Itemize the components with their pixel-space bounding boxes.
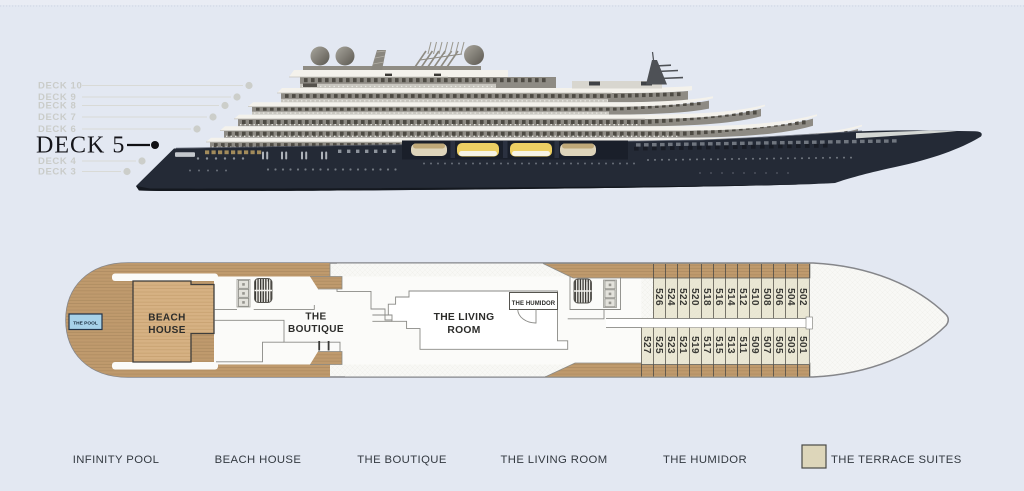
svg-text:517: 517 xyxy=(701,336,712,354)
svg-text:DECK 8: DECK 8 xyxy=(38,101,76,112)
svg-text:509: 509 xyxy=(749,336,760,354)
svg-text:525: 525 xyxy=(653,336,664,354)
svg-text:507: 507 xyxy=(761,336,772,354)
svg-text:DECK 7: DECK 7 xyxy=(38,112,76,123)
svg-text:521: 521 xyxy=(677,336,688,354)
svg-text:527: 527 xyxy=(641,336,652,354)
svg-text:505: 505 xyxy=(773,336,784,354)
svg-text:THE POOL: THE POOL xyxy=(73,321,98,327)
svg-text:INFINITY POOL: INFINITY POOL xyxy=(73,454,160,466)
svg-text:DECK 10: DECK 10 xyxy=(38,81,82,92)
svg-text:516: 516 xyxy=(713,288,724,306)
svg-text:BOUTIQUE: BOUTIQUE xyxy=(288,324,344,335)
svg-text:522: 522 xyxy=(677,288,688,306)
svg-text:510: 510 xyxy=(749,288,760,306)
svg-text:526: 526 xyxy=(653,288,664,306)
svg-text:508: 508 xyxy=(761,288,772,306)
svg-text:THE TERRACE SUITES: THE TERRACE SUITES xyxy=(831,454,962,466)
svg-text:DECK 3: DECK 3 xyxy=(38,167,76,178)
svg-text:524: 524 xyxy=(665,288,676,306)
svg-text:504: 504 xyxy=(785,288,796,306)
svg-text:512: 512 xyxy=(737,288,748,306)
svg-text:503: 503 xyxy=(785,336,796,354)
svg-text:520: 520 xyxy=(689,288,700,306)
svg-text:511: 511 xyxy=(737,336,748,353)
svg-text:THE BOUTIQUE: THE BOUTIQUE xyxy=(357,454,447,466)
svg-text:506: 506 xyxy=(773,288,784,306)
svg-text:THE HUMIDOR: THE HUMIDOR xyxy=(663,454,747,466)
svg-text:THE LIVING ROOM: THE LIVING ROOM xyxy=(500,454,607,466)
svg-text:BEACH HOUSE: BEACH HOUSE xyxy=(215,454,302,466)
svg-text:DECK 5: DECK 5 xyxy=(36,133,125,159)
svg-text:502: 502 xyxy=(797,288,808,306)
svg-text:515: 515 xyxy=(713,336,724,354)
svg-text:HOUSE: HOUSE xyxy=(148,325,186,336)
svg-text:514: 514 xyxy=(725,288,736,306)
svg-text:513: 513 xyxy=(725,336,736,354)
svg-text:523: 523 xyxy=(665,336,676,354)
svg-text:BEACH: BEACH xyxy=(148,313,186,324)
svg-text:519: 519 xyxy=(689,336,700,354)
svg-text:THE: THE xyxy=(305,312,326,323)
svg-text:518: 518 xyxy=(701,288,712,306)
svg-text:ROOM: ROOM xyxy=(447,325,480,336)
svg-text:THE HUMIDOR: THE HUMIDOR xyxy=(512,301,556,307)
svg-text:THE LIVING: THE LIVING xyxy=(434,312,495,323)
svg-text:501: 501 xyxy=(797,336,808,354)
